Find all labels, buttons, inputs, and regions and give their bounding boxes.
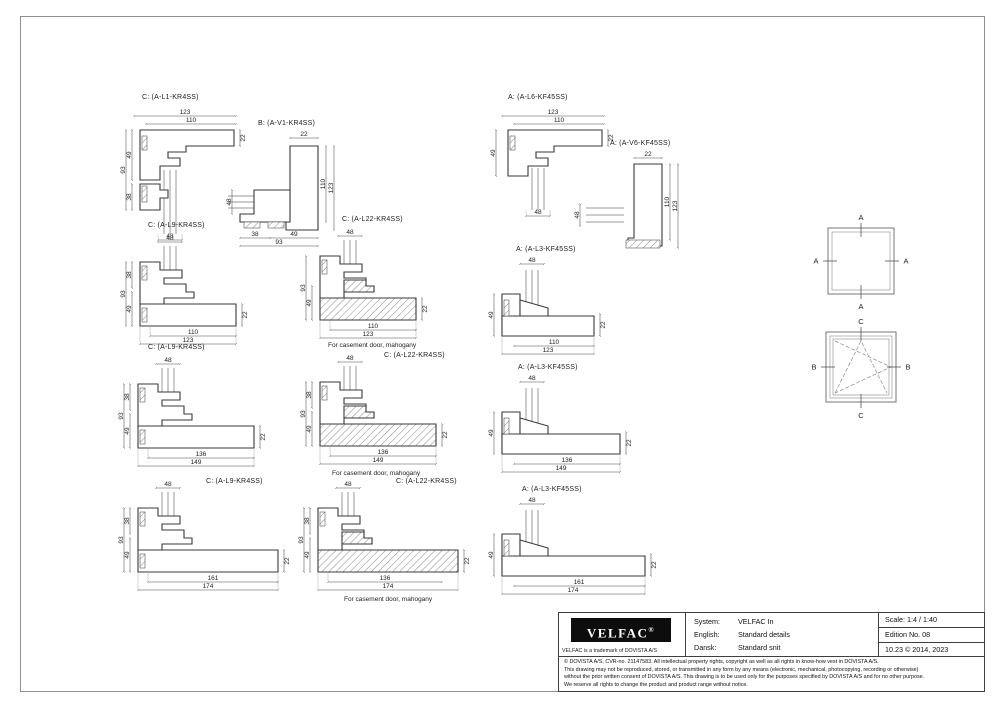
dim-value: 123 (672, 200, 679, 211)
sash-hatched (342, 532, 372, 544)
window-frame (826, 332, 896, 402)
dim-value: 38 (126, 271, 133, 279)
section-marker: A (858, 213, 863, 222)
dim-value: 93 (275, 239, 283, 246)
dim-value: 123 (543, 347, 554, 354)
dim-value: 110 (186, 117, 197, 124)
dim-value: 49 (306, 299, 313, 307)
dim-value: 49 (488, 311, 495, 319)
dim-value: 93 (118, 412, 125, 420)
detail-label: C: (A-L9-KR4SS) (148, 344, 205, 351)
copyright-line: This drawing may not be reproduced, stor… (564, 667, 979, 674)
detail-caption: For casement door, mahogany (328, 342, 416, 349)
info-row-dansk: Dansk: Standard snit (694, 643, 878, 652)
sash-hatched (344, 280, 374, 292)
info-key: System: (694, 617, 738, 626)
section-marker: A (813, 257, 818, 266)
detail-caption: For casement door, mahogany (344, 596, 432, 603)
dim-value: 49 (126, 151, 133, 159)
gasket (510, 136, 515, 150)
detail-label: C: (A-L22-KR4SS) (342, 216, 403, 223)
detail-label: A: (A-V6-KF45SS) (610, 140, 670, 147)
dim-value: 48 (574, 211, 581, 219)
dim-value: 110 (320, 178, 327, 189)
elevation-casement-window: C B B C (804, 314, 918, 429)
meta-cell: Scale: 1:4 / 1:40 Edition No. 08 10.23 ©… (879, 613, 984, 656)
copyright-line: without the prior written consent of DOV… (564, 674, 979, 681)
copyright-note: © DOVISTA A/S, CVR-no. 21147583. All int… (559, 657, 984, 691)
dim-value: 38 (251, 231, 259, 238)
dim-value: 174 (568, 587, 579, 594)
sill-upstand (520, 418, 548, 434)
profile-drawing: 22 110 123 48 (576, 152, 704, 264)
dim-value: 174 (203, 583, 214, 590)
copyright-line: © DOVISTA A/S, CVR-no. 21147583. All int… (564, 659, 979, 666)
dim-value: 93 (300, 410, 307, 418)
detail-label: A: (A-L3-KF45SS) (522, 486, 582, 493)
gasket (244, 222, 260, 228)
info-key: English: (694, 630, 738, 639)
dim-value: 161 (574, 579, 585, 586)
gasket (504, 540, 509, 556)
detail-label: C: (A-L1-KR4SS) (142, 94, 199, 101)
dim-value: 49 (488, 551, 495, 559)
detail-label: A: (A-L3-KF45SS) (518, 364, 578, 371)
registered-mark: ® (648, 626, 655, 634)
scale-value: Scale: 1:4 / 1:40 (879, 613, 984, 628)
profile-outline (628, 164, 662, 246)
gasket (504, 418, 509, 434)
dim-value: 149 (191, 459, 202, 466)
profile-outline (140, 262, 194, 304)
dim-value: 48 (528, 257, 536, 264)
glass-pane-lines (532, 168, 544, 210)
dim-value: 93 (120, 166, 127, 174)
dim-value: 123 (363, 331, 374, 338)
gasket (322, 386, 327, 400)
logo-cell: VELFAC® VELFAC is a trademark of DOVISTA… (559, 613, 686, 656)
dim-value: 48 (528, 375, 536, 382)
gasket (140, 512, 145, 526)
profile-outline (138, 384, 192, 426)
sill-hatched (320, 424, 436, 446)
date-copyright-value: 10.23 © 2014, 2023 (879, 643, 984, 657)
copyright-line: We reserve all rights to change the prod… (564, 682, 979, 689)
gasket (142, 308, 147, 322)
dim-value: 93 (118, 536, 125, 544)
detail-caption: For casement door, mahogany (332, 470, 420, 477)
sash-frame (830, 336, 892, 398)
dim-value: 38 (126, 193, 133, 201)
svg-defs (0, 0, 2, 2)
opening-symbol (835, 341, 891, 393)
dim-value: 123 (548, 109, 559, 116)
sill-outline (502, 316, 594, 336)
detail-label: A: (A-L6-KF45SS) (508, 94, 568, 101)
section-marker: C (858, 317, 864, 326)
dim-value: 48 (166, 235, 174, 242)
logo-text: VELFAC (587, 625, 648, 640)
gasket (140, 554, 145, 568)
dim-value: 49 (306, 425, 313, 433)
info-key: Dansk: (694, 643, 738, 652)
dim-value: 38 (304, 517, 311, 525)
dim-value: 48 (528, 497, 536, 504)
dim-value: 48 (226, 198, 233, 206)
dim-value: 49 (490, 149, 497, 157)
dim-value: 93 (300, 284, 307, 292)
dim-value: 174 (383, 583, 394, 590)
dim-value: 49 (290, 231, 298, 238)
dim-value: 22 (644, 151, 652, 158)
edition-value: Edition No. 08 (879, 628, 984, 643)
gasket (140, 388, 145, 402)
dim-value: 22 (442, 431, 449, 439)
info-row-english: English: Standard details (694, 630, 878, 639)
profile-outline (286, 146, 318, 230)
profile-drawing: 48 49 136 149 22 (490, 376, 638, 478)
sill-outline (502, 434, 620, 454)
sill-outline (502, 556, 645, 576)
profile-drawing: 48 38 93 49 110 123 22 (122, 234, 250, 354)
gasket (268, 222, 284, 228)
gasket (504, 300, 509, 316)
dim-value: 161 (208, 575, 219, 582)
sill-upstand (520, 540, 548, 556)
dim-value: 48 (344, 481, 352, 488)
detail-label: C: (A-L9-KR4SS) (148, 222, 205, 229)
elevation-drawing: A A A A (806, 212, 916, 312)
glass-pane-lines (526, 510, 538, 546)
gasket (142, 186, 147, 202)
dim-value: 110 (554, 117, 565, 124)
dim-value: 123 (328, 182, 335, 193)
dim-value: 22 (464, 557, 471, 565)
dim-value: 110 (368, 323, 379, 330)
gasket (142, 136, 147, 150)
sill-upstand (520, 300, 548, 316)
section-marker: A (858, 302, 863, 311)
dim-value: 48 (534, 209, 542, 216)
dim-value: 93 (298, 536, 305, 544)
window-frame-inner (832, 232, 890, 290)
info-value: Standard details (738, 630, 790, 639)
dim-value: 48 (164, 357, 172, 364)
dim-value: 136 (380, 575, 391, 582)
glass-pane-lines (526, 388, 538, 424)
dim-value: 49 (304, 551, 311, 559)
glass-pane-lines (526, 270, 538, 306)
trademark-note: VELFAC is a trademark of DOVISTA A/S (562, 648, 657, 654)
dim-value: 136 (562, 457, 573, 464)
profile-outline-arm (240, 190, 290, 222)
sill-hatched (320, 298, 416, 320)
sill-outline (138, 550, 278, 572)
glass-pane-lines (586, 208, 624, 222)
dim-value: 22 (651, 561, 658, 569)
dim-value: 149 (556, 465, 567, 472)
drawing-sheet: C: (A-L1-KR4SS) 123 110 93 49 38 48 22 B… (0, 0, 1000, 707)
title-block-top: VELFAC® VELFAC is a trademark of DOVISTA… (559, 613, 984, 657)
dim-value: 48 (346, 355, 354, 362)
dim-value: 49 (124, 551, 131, 559)
window-frame (828, 228, 894, 294)
profile-drawing: 48 38 93 49 161 174 22 (120, 480, 292, 600)
sill-outline (140, 304, 236, 326)
sash-frame-inner (833, 339, 889, 395)
dim-value: 49 (126, 305, 133, 313)
dim-value: 49 (124, 427, 131, 435)
sill-outline (138, 426, 254, 448)
dim-value: 110 (549, 339, 560, 346)
profile-drawing: 48 49 110 123 22 (490, 258, 612, 360)
section-marker: B (811, 363, 816, 372)
dim-value: 123 (180, 109, 191, 116)
gasket (140, 430, 145, 444)
profile-drawing: 48 38 93 49 136 149 22 (302, 354, 450, 474)
profile-outline (138, 508, 192, 550)
elevation-fixed-window: A A A A (806, 212, 916, 317)
dim-value: 93 (120, 290, 127, 298)
dim-value: 22 (260, 433, 267, 441)
dim-value: 22 (600, 321, 607, 329)
dim-value: 136 (196, 451, 207, 458)
info-cell: System: VELFAC In English: Standard deta… (686, 613, 879, 656)
dim-value: 49 (488, 429, 495, 437)
info-row-system: System: VELFAC In (694, 617, 878, 626)
section-ticks (823, 223, 899, 299)
dim-value: 136 (378, 449, 389, 456)
dim-value: 22 (422, 305, 429, 313)
detail-label: A: (A-L3-KF45SS) (516, 246, 576, 253)
dim-value: 149 (373, 457, 384, 464)
dim-value: 48 (346, 229, 354, 236)
sill-hatched (318, 550, 458, 572)
profile-drawing: 48 38 93 49 136 149 22 (120, 356, 268, 476)
dim-value: 38 (306, 391, 313, 399)
gasket (142, 266, 147, 280)
velfac-logo: VELFAC® (571, 618, 671, 642)
gasket (626, 240, 660, 248)
dim-value: 38 (124, 393, 131, 401)
section-marker: C (858, 411, 864, 420)
elevation-drawing: C B B C (804, 314, 918, 424)
info-value: Standard snit (738, 643, 780, 652)
dim-value: 22 (300, 131, 308, 138)
gasket (322, 260, 327, 274)
dim-value: 48 (164, 481, 172, 488)
profile-drawing: 48 93 49 110 123 22 (302, 228, 430, 348)
section-marker: B (905, 363, 910, 372)
dim-value: 110 (188, 329, 199, 336)
gasket (320, 512, 325, 526)
info-value: VELFAC In (738, 617, 774, 626)
dim-value: 110 (664, 196, 671, 207)
dim-value: 22 (242, 311, 249, 319)
dim-value: 22 (626, 439, 633, 447)
dim-value: 123 (183, 337, 194, 344)
dim-value: 38 (124, 517, 131, 525)
profile-outline (140, 130, 234, 180)
profile-drawing: 48 49 161 174 22 (490, 498, 662, 600)
section-marker: A (903, 257, 908, 266)
sash-hatched (344, 406, 374, 418)
detail-label: B: (A-V1-KR4SS) (258, 120, 315, 127)
title-block: VELFAC® VELFAC is a trademark of DOVISTA… (558, 612, 985, 692)
dim-value: 22 (284, 557, 291, 565)
profile-drawing: 48 38 93 49 136 174 22 (300, 480, 472, 600)
